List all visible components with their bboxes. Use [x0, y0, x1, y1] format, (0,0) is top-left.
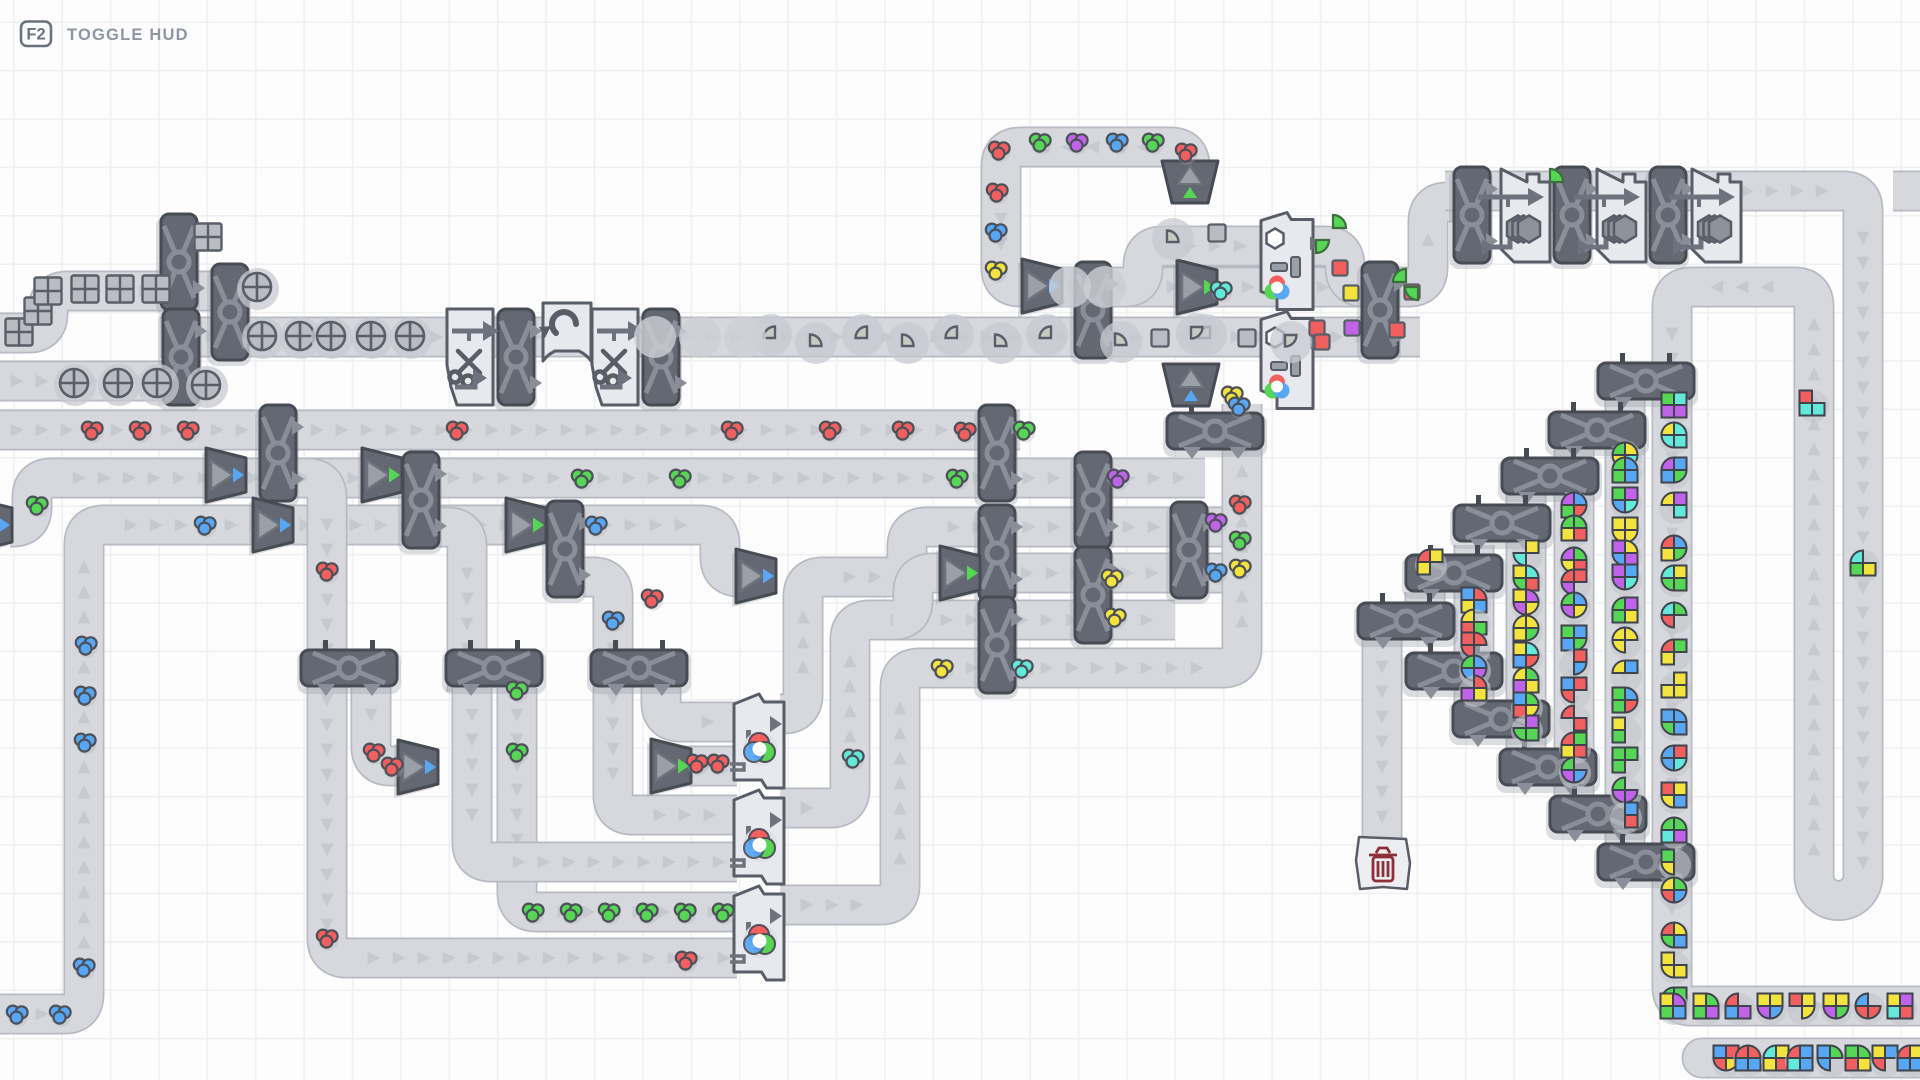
svg-text:F2: F2	[26, 26, 45, 44]
svg-text:TOGGLE HUD: TOGGLE HUD	[67, 26, 189, 44]
